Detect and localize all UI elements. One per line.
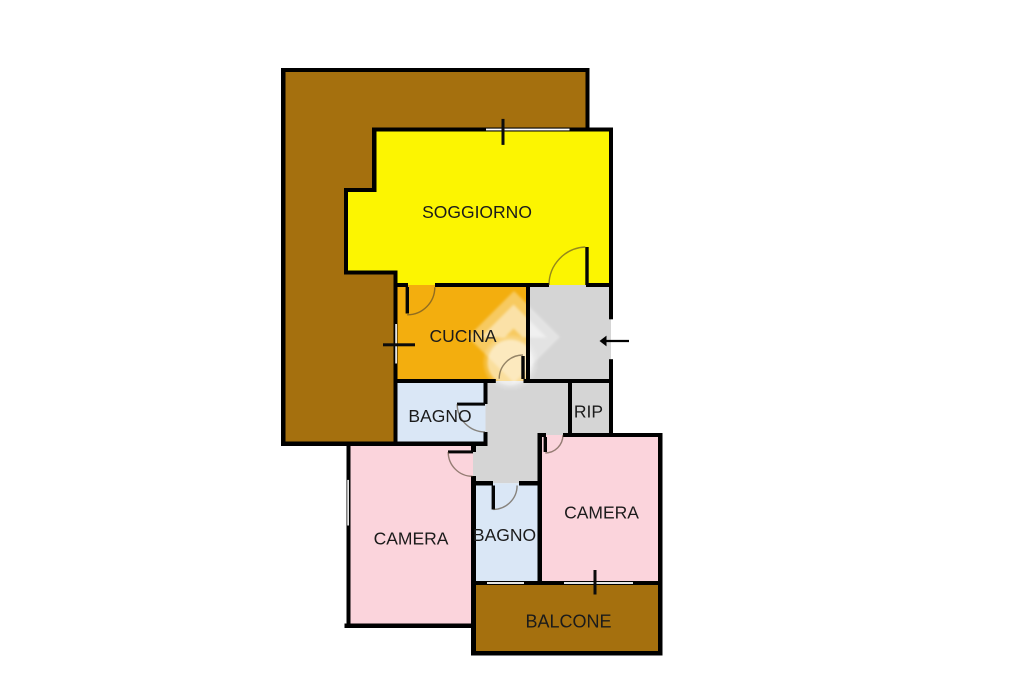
svg-text:CAMERA: CAMERA bbox=[374, 529, 449, 549]
svg-text:BAGNO: BAGNO bbox=[408, 406, 471, 426]
svg-text:RIP: RIP bbox=[574, 402, 603, 422]
svg-text:CUCINA: CUCINA bbox=[429, 326, 496, 346]
svg-text:CAMERA: CAMERA bbox=[564, 503, 639, 523]
svg-text:BAGNO: BAGNO bbox=[473, 525, 536, 545]
svg-text:SOGGIORNO: SOGGIORNO bbox=[422, 202, 532, 222]
svg-text:BALCONE: BALCONE bbox=[525, 612, 611, 632]
